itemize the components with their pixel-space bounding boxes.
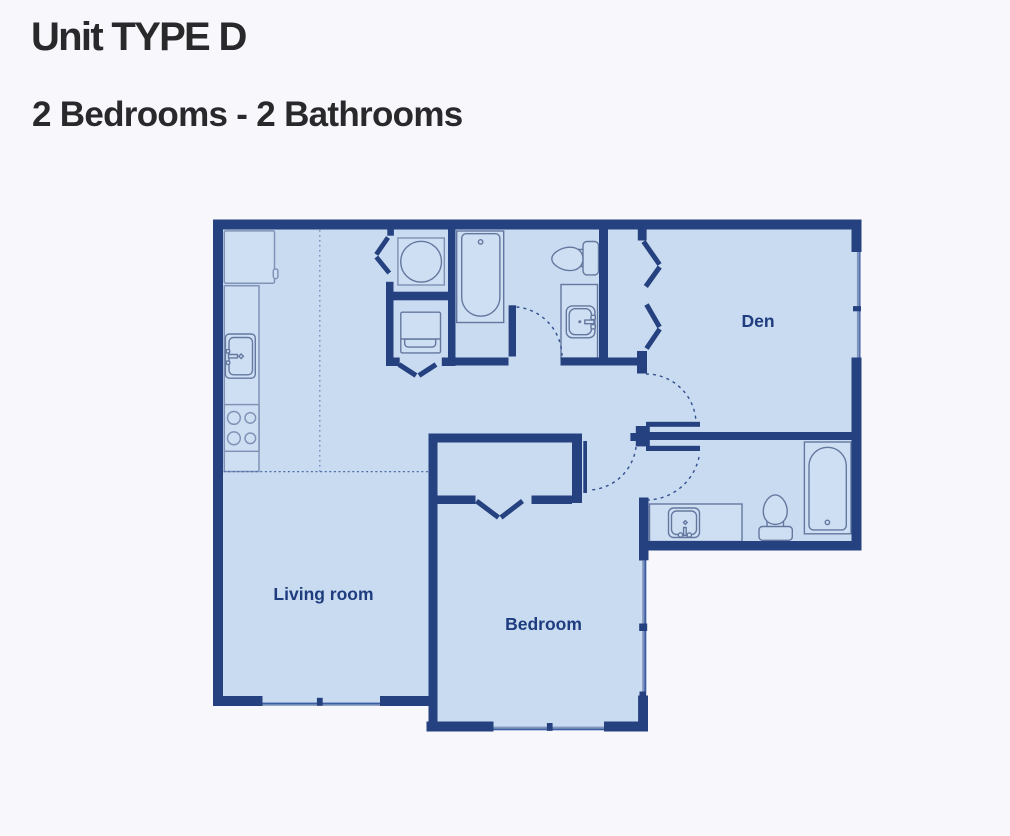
svg-text:Living room: Living room <box>273 584 373 604</box>
svg-text:Den: Den <box>741 311 774 331</box>
svg-text:Bedroom: Bedroom <box>505 614 582 634</box>
